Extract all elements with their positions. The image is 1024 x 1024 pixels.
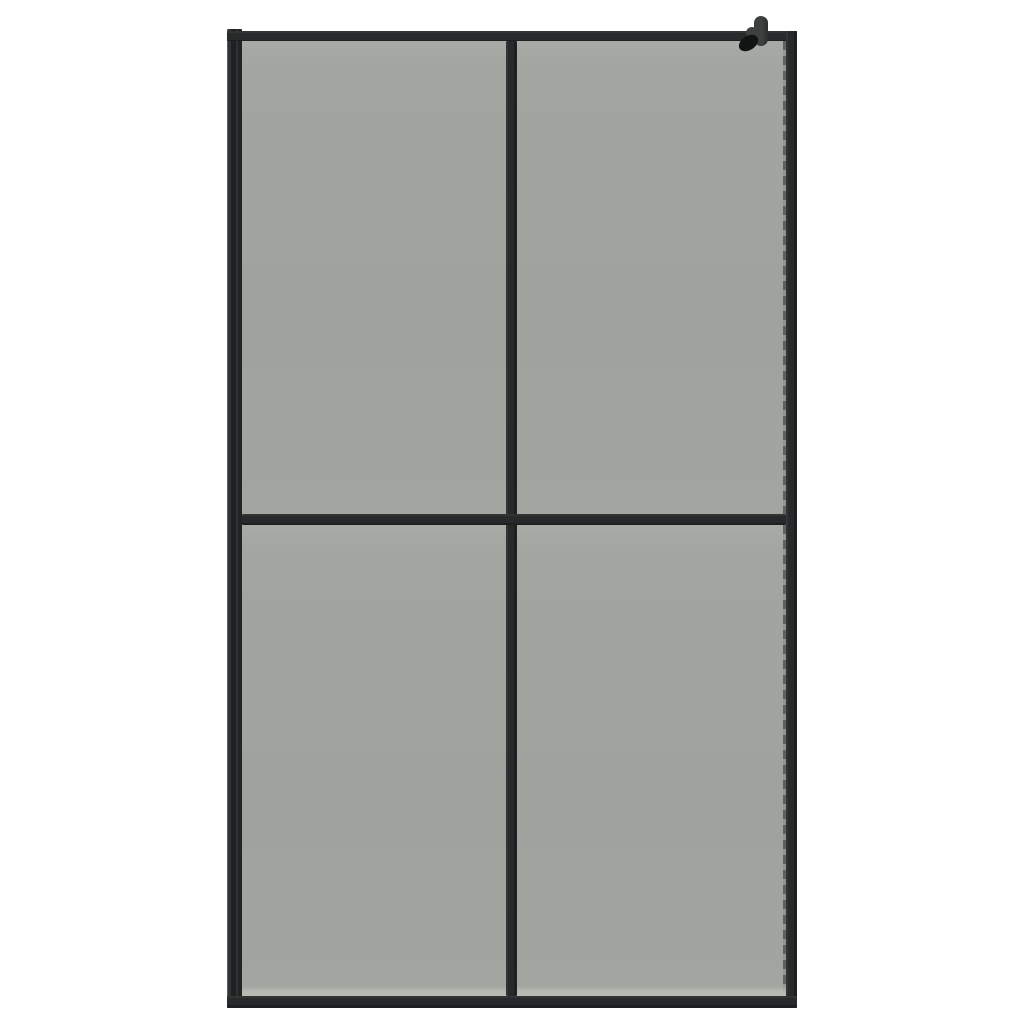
frame-right-bar: [786, 31, 797, 1008]
glass-pane-bottom-right: [517, 525, 786, 996]
glass-pane-top-left: [242, 41, 506, 514]
glass-pane-top-right: [517, 41, 786, 514]
product-photo: [0, 0, 1024, 1024]
frame-left-wall-profile: [227, 29, 242, 1008]
glass-pane-bottom-left: [242, 525, 506, 996]
shower-screen: [0, 0, 1024, 1024]
frame-center-horizontal-bar: [242, 514, 786, 525]
frame-top-bar: [227, 31, 797, 41]
frame-bottom-bar: [227, 996, 797, 1008]
